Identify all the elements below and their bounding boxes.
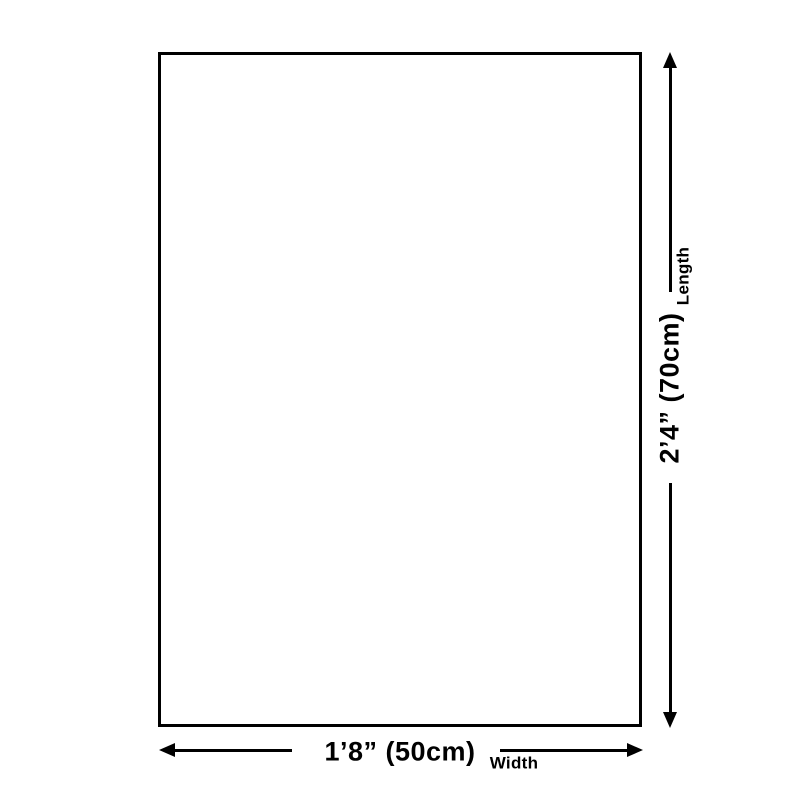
- width-axis-label: Width: [490, 755, 539, 772]
- length-arrow-line-top: [669, 66, 672, 292]
- length-axis-label: Length: [675, 247, 692, 305]
- length-arrow-line-bottom: [669, 483, 672, 712]
- size-diagram: Length 2’4” (70cm) 1’8” (50cm) Width: [0, 0, 800, 800]
- product-outline: [158, 52, 642, 727]
- length-value-label: 2’4” (70cm): [657, 312, 684, 463]
- width-arrow-line-left: [175, 749, 292, 752]
- arrow-down-icon: [663, 712, 677, 728]
- arrow-left-icon: [159, 743, 175, 757]
- width-arrow-line-right: [500, 749, 627, 752]
- arrow-right-icon: [627, 743, 643, 757]
- width-value-label: 1’8” (50cm): [324, 739, 475, 766]
